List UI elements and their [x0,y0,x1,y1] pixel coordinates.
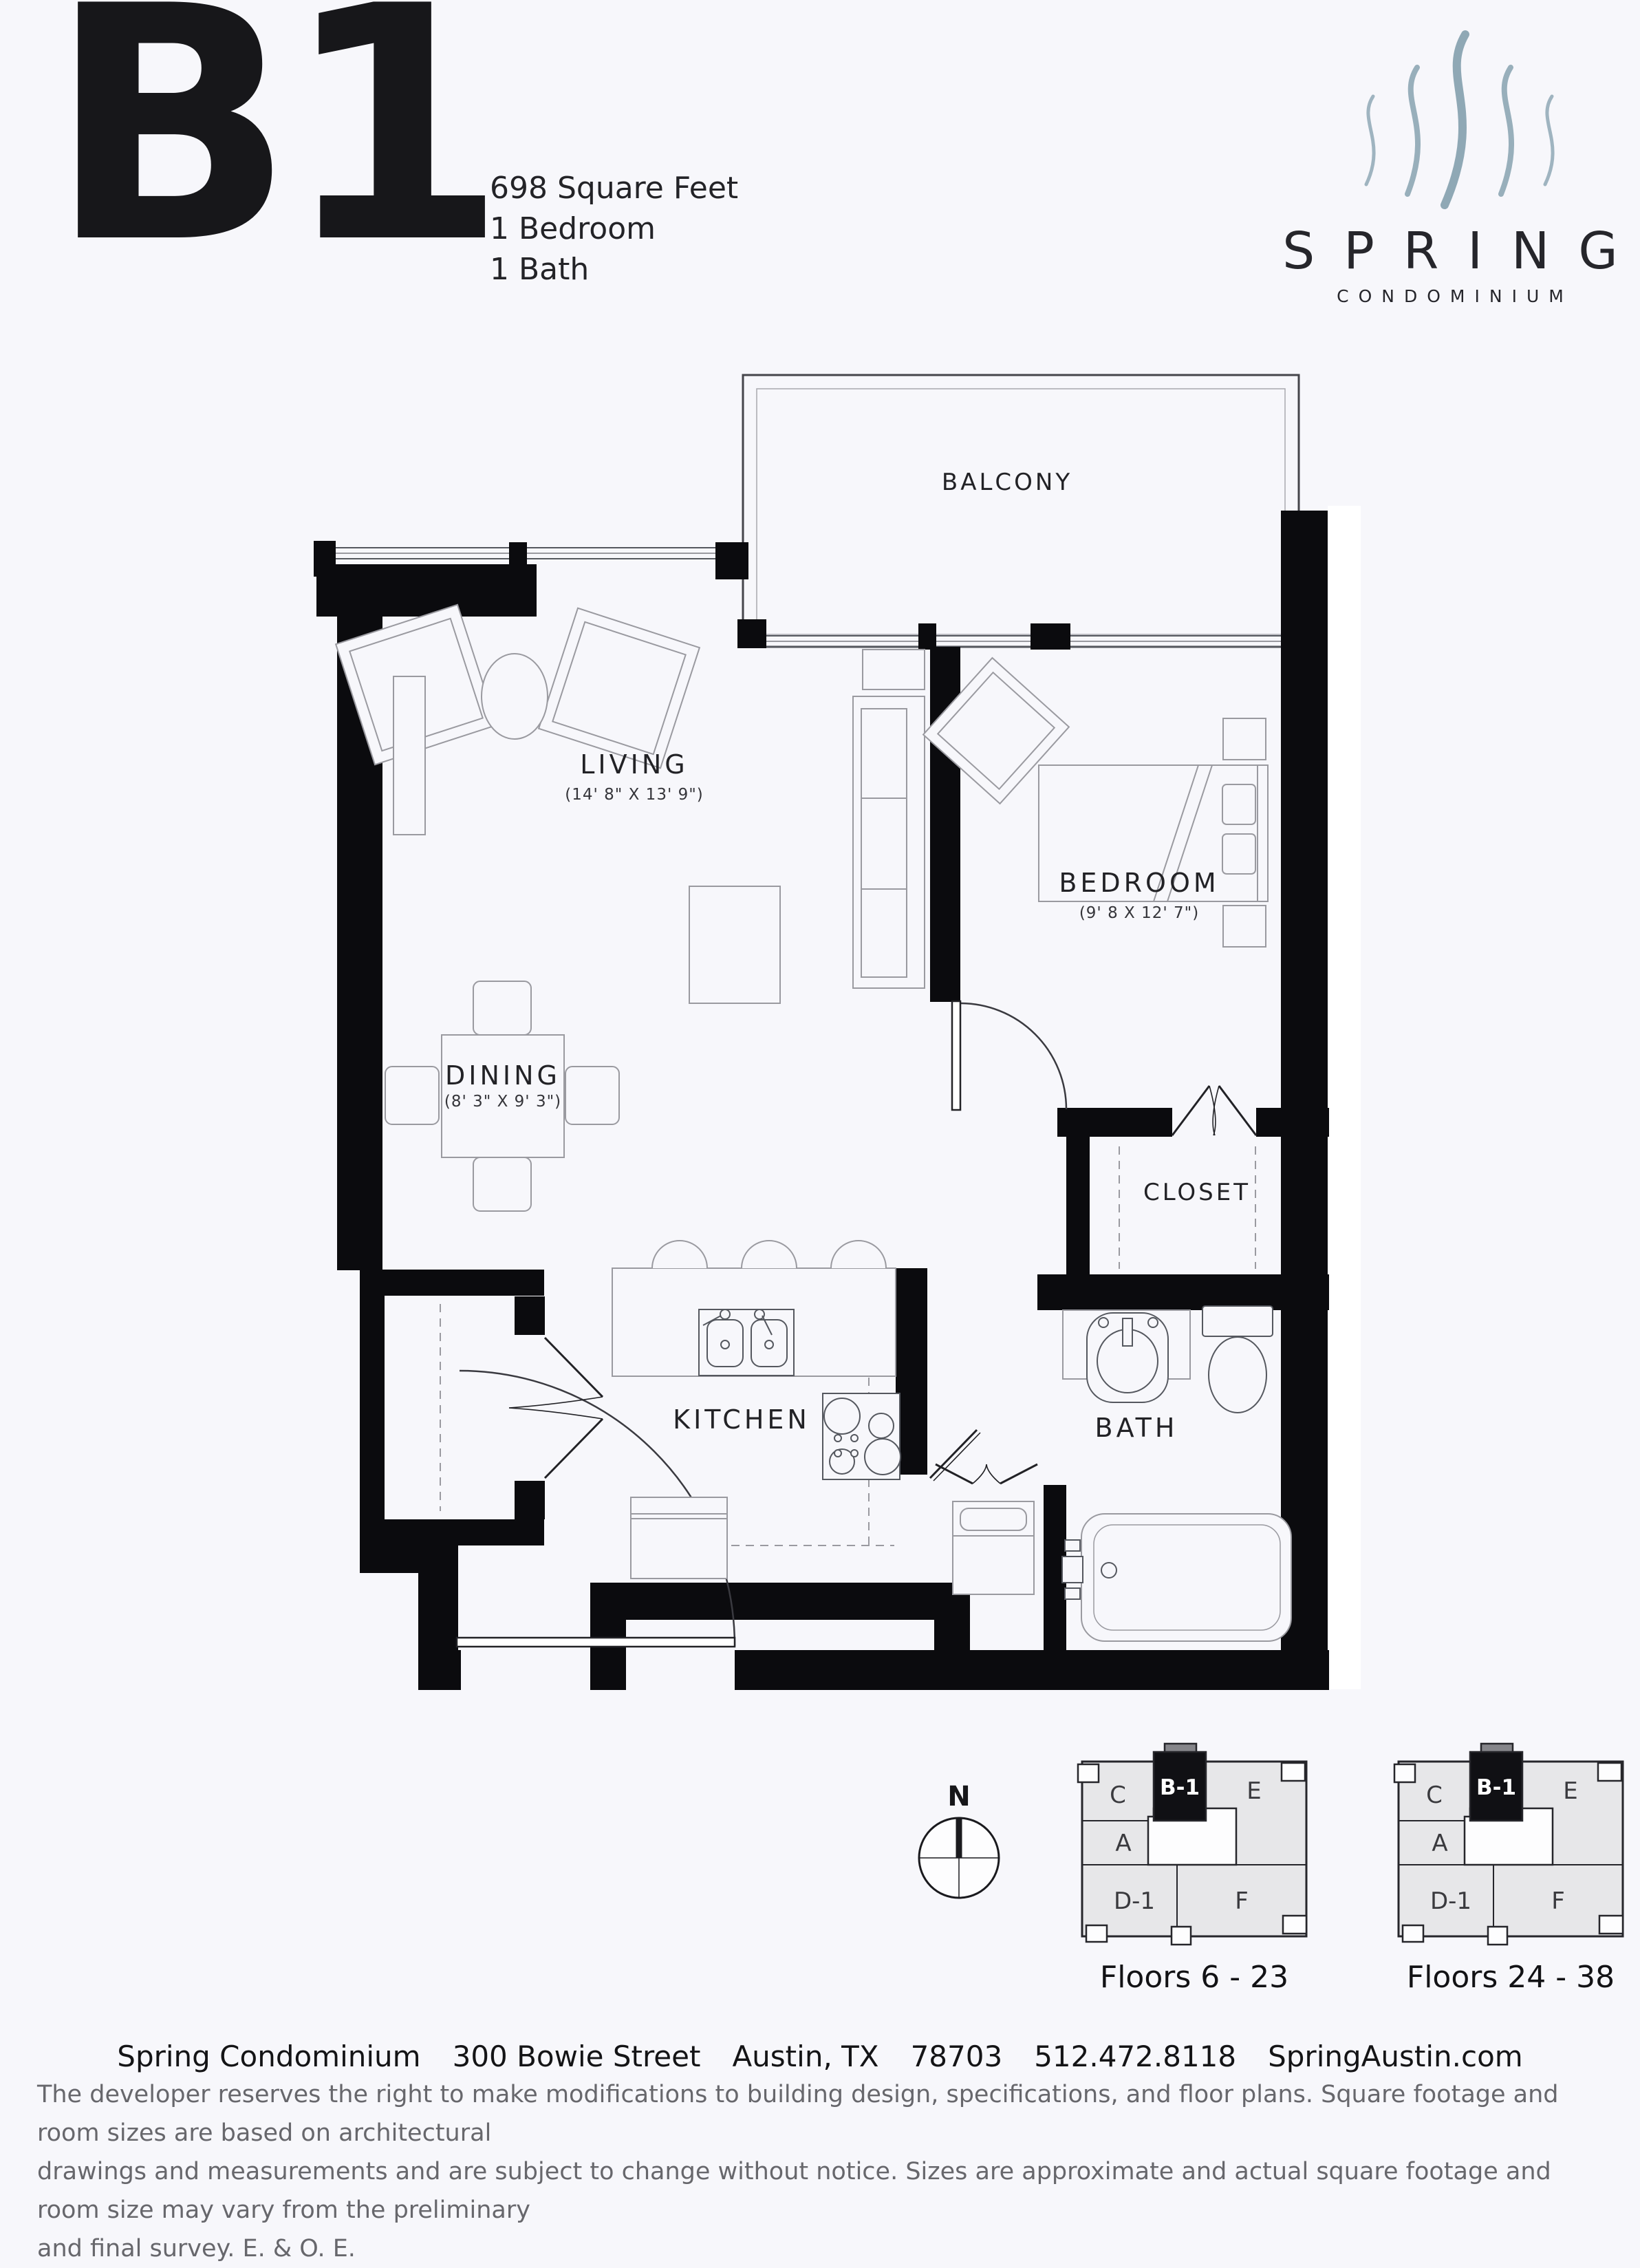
pillow [1222,784,1255,824]
key-plan-caption: Floors 24 - 38 [1407,1960,1615,1995]
room-label-kitchen: KITCHEN [673,1404,810,1435]
unit-label-e: E [1247,1777,1261,1805]
compass-north-label: N [947,1781,970,1812]
bathtub [1062,1514,1291,1641]
address-line: Spring Condominium 300 Bowie Street Aust… [0,2040,1640,2073]
unit-label-a: A [1432,1830,1447,1857]
unit-label-d1: D-1 [1114,1887,1155,1915]
address-phone: 512.472.8118 [1034,2040,1236,2073]
kitchen-sink [699,1309,794,1376]
room-dims-dining: (8' 3" X 9' 3") [444,1093,561,1111]
balcony-walls [743,375,1299,647]
laundry-bifold-doors [936,1464,1037,1484]
entry-door-leaf [457,1638,735,1647]
floorplan-sheet: { "header": { "plan_code": "B1", "stats"… [0,0,1640,2147]
bath-door-leaf [930,1430,980,1481]
room-label-bedroom: BEDROOM [1059,868,1219,898]
side-table [482,654,548,739]
address-website: SpringAustin.com [1268,2040,1523,2073]
end-table [863,650,925,689]
address-name: Spring Condominium [117,2040,420,2073]
unit-label-c: C [1110,1782,1126,1809]
exterior-strip [1328,506,1361,1689]
coffee-table [689,886,780,1003]
washer-dryer [953,1501,1034,1594]
entry-closet-bifold-doors [509,1338,603,1478]
room-dims-living: (14' 8" X 13' 9") [565,786,704,804]
console-table [393,676,425,835]
disclaimer: The developer reserves the right to make… [37,2075,1619,2268]
cooktop [823,1393,900,1479]
unit-label-b1-highlighted: B-1 [1160,1775,1200,1800]
sofa [853,696,925,988]
refrigerator [631,1497,727,1579]
living-window-wall [318,548,743,559]
unit-label-a: A [1115,1830,1131,1857]
address-zip: 78703 [911,2040,1003,2073]
armchair [539,608,700,768]
key-plan-floors-24-38: C B-1 E A D-1 F Floors 24 - 38 [1394,1744,1623,1995]
disclaimer-line: drawings and measurements and are subjec… [37,2152,1619,2229]
unit-label-f: F [1235,1887,1249,1915]
disclaimer-line: and final survey. E. & O. E. [37,2229,1619,2268]
compass-icon: N [919,1781,999,1898]
closet-bifold-doors [1172,1086,1256,1135]
room-label-living: LIVING [580,749,688,780]
unit-label-f: F [1551,1887,1565,1915]
room-label-closet: CLOSET [1143,1179,1251,1206]
address-street: 300 Bowie Street [453,2040,701,2073]
unit-label-c: C [1426,1782,1443,1809]
address-city: Austin, TX [732,2040,878,2073]
key-plan-floors-6-23: C B-1 E A D-1 F Floors 6 - 23 [1078,1744,1306,1995]
floor-plan-drawing: BALCONY LIVING (14' 8" X 13' 9") BEDROOM… [0,0,1640,2147]
room-dims-bedroom: (9' 8 X 12' 7") [1079,904,1199,922]
bedroom-door-leaf [952,1001,960,1110]
pillow [1222,834,1255,874]
room-label-dining: DINING [445,1060,561,1091]
balcony-door-band [746,636,1281,647]
nightstand [1223,718,1266,760]
unit-label-e: E [1563,1777,1577,1805]
nightstand [1223,906,1266,947]
bedroom-door-swing [960,1003,1066,1109]
disclaimer-line: The developer reserves the right to make… [37,2075,1619,2152]
room-label-balcony: BALCONY [942,469,1072,496]
key-plan-caption: Floors 6 - 23 [1100,1960,1288,1995]
bar-stools [652,1241,886,1268]
unit-label-d1: D-1 [1430,1887,1471,1915]
toilet [1202,1306,1273,1413]
bath-vanity [1063,1310,1190,1402]
room-label-bath: BATH [1095,1413,1178,1443]
unit-label-b1-highlighted: B-1 [1476,1775,1516,1800]
